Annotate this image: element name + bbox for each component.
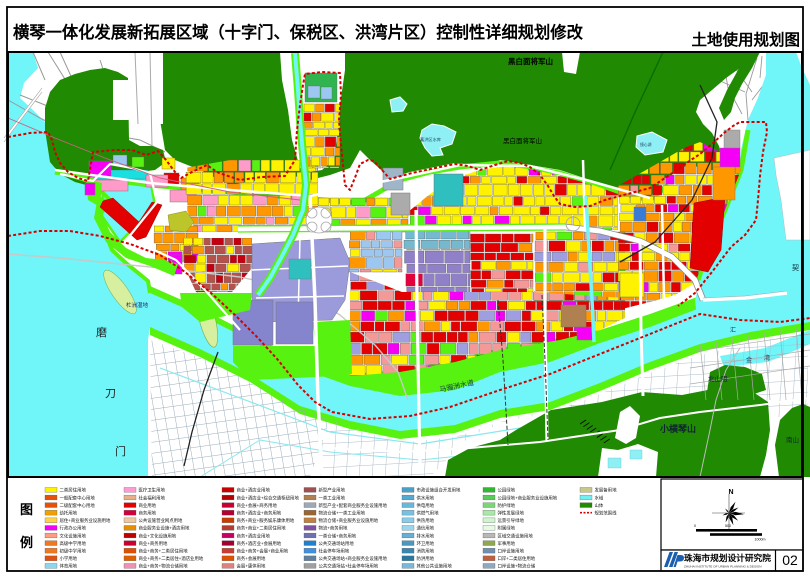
svg-text:商业服务业设施+酒店用地: 商业服务业设施+酒店用地 xyxy=(139,525,190,532)
svg-text:防护绿地: 防护绿地 xyxy=(498,502,516,509)
svg-text:物流仓储+一类工业用地: 物流仓储+一类工业用地 xyxy=(319,510,366,517)
svg-text:居住+商业服务业设施用地: 居住+商业服务业设施用地 xyxy=(60,517,111,524)
svg-text:附属绿地: 附属绿地 xyxy=(498,525,516,532)
svg-text:其他公共设施用地: 其他公共设施用地 xyxy=(417,563,453,570)
svg-text:高级中学用地: 高级中学用地 xyxy=(60,540,87,547)
svg-text:物流+商务用地: 物流+商务用地 xyxy=(319,525,349,532)
svg-text:商务+商业+服务娱乐康体用地: 商务+商业+服务娱乐康体用地 xyxy=(237,517,295,524)
svg-text:商务+商业+二类居住用地: 商务+商业+二类居住用地 xyxy=(237,525,287,532)
svg-text:军事用地: 军事用地 xyxy=(498,540,516,547)
svg-text:供热用地: 供热用地 xyxy=(417,517,435,524)
svg-text:公园绿地+商业服务业设施用地: 公园绿地+商业服务业设施用地 xyxy=(498,494,558,501)
svg-text:02: 02 xyxy=(782,552,798,568)
svg-text:公共交通场站用地: 公共交通场站用地 xyxy=(319,540,355,547)
svg-text:初级中学用地: 初级中学用地 xyxy=(60,548,87,555)
svg-text:金: 金 xyxy=(746,356,752,364)
svg-text:山体: 山体 xyxy=(595,502,604,509)
svg-text:横琴一体化发展新拓展区域（十字门、保税区、洪湾片区）控制性详: 横琴一体化发展新拓展区域（十字门、保税区、洪湾片区）控制性详细规划修改 xyxy=(13,23,584,42)
svg-text:南山: 南山 xyxy=(786,435,799,444)
svg-text:公共交通场站+社会停车场用地: 公共交通场站+社会停车场用地 xyxy=(319,563,379,570)
svg-text:通信用地: 通信用地 xyxy=(417,525,435,532)
svg-text:土地使用规划图: 土地使用规划图 xyxy=(691,30,800,49)
svg-text:水域: 水域 xyxy=(595,494,604,500)
svg-text:1000m: 1000m xyxy=(755,538,766,542)
svg-text:环卫用地: 环卫用地 xyxy=(417,540,435,547)
svg-text:杧洲湿地: 杧洲湿地 xyxy=(126,301,149,309)
svg-text:发展备用地: 发展备用地 xyxy=(595,487,618,494)
svg-text:远景引导绿地: 远景引导绿地 xyxy=(498,517,525,524)
svg-text:500: 500 xyxy=(725,524,731,528)
svg-text:0: 0 xyxy=(694,524,696,528)
svg-text:消防用地: 消防用地 xyxy=(417,548,435,555)
svg-text:契: 契 xyxy=(792,263,799,272)
svg-text:商务+酒店业+会展用地: 商务+酒店业+会展用地 xyxy=(237,540,282,547)
svg-text:图: 图 xyxy=(20,502,33,517)
svg-text:商务+酒店业+商务用地: 商务+酒店业+商务用地 xyxy=(237,510,282,517)
svg-text:公共交通场站+商业服务业设施用地: 公共交通场站+商业服务业设施用地 xyxy=(319,555,388,562)
svg-text:幼托用地: 幼托用地 xyxy=(60,510,78,517)
svg-text:文化设施用地: 文化设施用地 xyxy=(60,532,87,539)
svg-text:一类仓储+商务用地: 一类仓储+商务用地 xyxy=(319,532,357,539)
svg-text:二级配套中心用地: 二级配套中心用地 xyxy=(60,502,96,509)
svg-text:一般配套中心用地: 一般配套中心用地 xyxy=(60,494,96,501)
svg-text:汇: 汇 xyxy=(730,326,736,334)
svg-text:口岸设施用地: 口岸设施用地 xyxy=(498,548,525,555)
svg-text:新型产业+配套商业服务业设施用地: 新型产业+配套商业服务业设施用地 xyxy=(319,502,388,509)
svg-text:蓄洪区水库: 蓄洪区水库 xyxy=(420,136,441,143)
svg-text:黑白面将军山: 黑白面将军山 xyxy=(508,56,553,66)
svg-text:物流仓储+商业服务业设施用地: 物流仓储+商业服务业设施用地 xyxy=(319,517,379,524)
svg-text:供水用地: 供水用地 xyxy=(417,494,435,501)
svg-text:市政设施组合开发用地: 市政设施组合开发用地 xyxy=(417,487,462,494)
svg-text:商务+酒店业用地: 商务+酒店业用地 xyxy=(237,532,271,539)
svg-text:一类工业用地: 一类工业用地 xyxy=(319,494,346,501)
svg-text:社会福利用地: 社会福利用地 xyxy=(139,494,166,501)
svg-text:社会停车场用地: 社会停车场用地 xyxy=(319,548,350,555)
svg-text:磨: 磨 xyxy=(96,326,107,339)
svg-text:门: 门 xyxy=(115,444,126,458)
svg-text:商业+会展+商务用地: 商业+会展+商务用地 xyxy=(237,502,278,509)
svg-text:区域交通设施用地: 区域交通设施用地 xyxy=(498,532,534,539)
svg-text:公园绿地: 公园绿地 xyxy=(498,487,516,494)
svg-text:商业用地: 商业用地 xyxy=(139,502,157,509)
svg-text:规划范围线: 规划范围线 xyxy=(595,510,618,517)
svg-text:医疗卫生用地: 医疗卫生用地 xyxy=(139,487,166,494)
svg-text:二类居住用地: 二类居住用地 xyxy=(60,487,87,494)
svg-text:珠海市规划设计研究院: 珠海市规划设计研究院 xyxy=(684,552,771,563)
svg-text:弹性发展绿地: 弹性发展绿地 xyxy=(498,510,525,517)
svg-text:新型产业用地: 新型产业用地 xyxy=(319,487,346,494)
svg-text:行政办公用地: 行政办公用地 xyxy=(60,525,87,532)
svg-text:湾: 湾 xyxy=(764,354,770,362)
svg-text:商业+商务用地: 商业+商务用地 xyxy=(139,540,169,547)
svg-text:例: 例 xyxy=(20,535,33,550)
svg-text:ZHUHAI INSTITUTE OF URBAN PLAN: ZHUHAI INSTITUTE OF URBAN PLANNING & DES… xyxy=(684,565,762,569)
svg-text:商务+会展用地: 商务+会展用地 xyxy=(237,555,267,562)
svg-text:防洪用地: 防洪用地 xyxy=(417,555,435,562)
svg-text:商业+酒店业用地: 商业+酒店业用地 xyxy=(237,487,271,494)
svg-text:商务用地: 商务用地 xyxy=(139,510,157,517)
svg-text:小横琴山: 小横琴山 xyxy=(659,423,696,434)
svg-text:供电用地: 供电用地 xyxy=(417,502,435,509)
svg-text:刀: 刀 xyxy=(105,388,116,400)
svg-text:北山咀: 北山咀 xyxy=(708,374,728,383)
svg-text:体育用地: 体育用地 xyxy=(60,563,78,570)
svg-text:商业+商务+物流仓储用地: 商业+商务+物流仓储用地 xyxy=(139,563,189,570)
svg-text:公共设施营业网点用地: 公共设施营业网点用地 xyxy=(139,517,184,524)
svg-text:商业+文化设施用地: 商业+文化设施用地 xyxy=(139,532,177,539)
svg-text:供燃气用地: 供燃气用地 xyxy=(417,510,440,517)
svg-text:会展+康体用地: 会展+康体用地 xyxy=(237,563,267,570)
svg-text:口岸+二类居住用地: 口岸+二类居住用地 xyxy=(498,555,536,562)
svg-text:口岸设施+物流仓储: 口岸设施+物流仓储 xyxy=(498,563,536,570)
svg-text:商业+商务+二类居住用地: 商业+商务+二类居住用地 xyxy=(139,548,189,555)
svg-text:小学用地: 小学用地 xyxy=(60,555,78,562)
svg-text:商业+商务+二类居住+酒店业用地: 商业+商务+二类居住+酒店业用地 xyxy=(139,555,204,562)
svg-text:镜心湖: 镜心湖 xyxy=(640,142,652,147)
svg-text:黑白面将军山: 黑白面将军山 xyxy=(503,136,542,145)
svg-text:商业+商务+会展+商业用地: 商业+商务+会展+商业用地 xyxy=(237,548,289,555)
svg-text:商业+酒店业+综合交通枢纽用地: 商业+酒店业+综合交通枢纽用地 xyxy=(237,494,300,501)
svg-text:排水用地: 排水用地 xyxy=(417,532,435,539)
